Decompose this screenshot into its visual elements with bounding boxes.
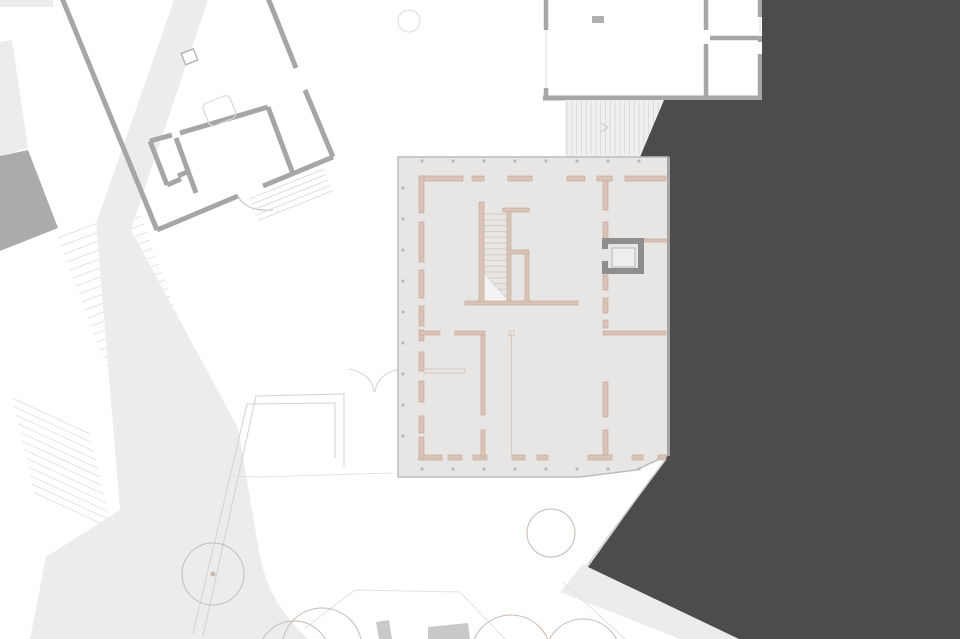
parking-hatch-lower-lines-2 (16, 415, 94, 451)
shrub-arc-right (375, 369, 400, 392)
slab-dots-top-5 (575, 159, 578, 162)
wall-top-6 (625, 176, 666, 181)
wall-spine-6 (603, 382, 608, 417)
parking-hatch-lower-lines-1 (14, 407, 92, 443)
wall-top-5 (597, 176, 612, 181)
tr-furniture-rect (592, 16, 604, 23)
parking-hatch-lower-lines-3 (18, 424, 96, 460)
stair-wall-east (525, 254, 529, 302)
wall-left-8 (419, 416, 424, 433)
wall-bottom-6 (588, 455, 612, 460)
slab-dots-top-7 (637, 159, 640, 162)
wall-bottom-7 (632, 455, 643, 460)
ul-wall-right-b (305, 90, 333, 157)
wall-left-9 (419, 437, 424, 460)
tree-circle-center (527, 509, 575, 557)
ul-wall-right-a (268, 0, 296, 68)
slab-dots-left-7 (401, 403, 404, 406)
slab-dots-left-8 (401, 434, 404, 437)
wall-left-7 (419, 381, 424, 402)
slab-dots-bottom-2 (482, 467, 485, 470)
slab-dots-top-4 (544, 159, 547, 162)
building-central (398, 157, 669, 477)
wall-spine-3 (603, 275, 608, 290)
wall-top-3 (508, 176, 532, 181)
slab-dots-top-2 (482, 159, 485, 162)
room-wall-h1 (419, 331, 440, 335)
ul-wall-bottom-a (157, 196, 238, 230)
slab-dots-bottom-1 (451, 467, 454, 470)
stair-wall-mid (507, 250, 529, 254)
tree-circle-bottom-4 (545, 619, 621, 639)
wall-top-4 (567, 176, 585, 181)
wall-top-2 (472, 176, 484, 181)
upper-left-stair-treads-0 (249, 169, 324, 199)
ground-bit-2 (428, 623, 470, 639)
elevator-car (612, 248, 635, 267)
parking-hatch-lower-lines-6 (24, 450, 102, 486)
room-wall-v1 (481, 335, 485, 415)
wall-left-2 (419, 222, 424, 262)
tr-window-glazing (546, 17, 760, 88)
road-top-left-bar (0, 0, 53, 7)
wall-spine-7 (603, 430, 608, 455)
wall-bottom-2 (448, 455, 462, 460)
parking-hatch-lower-lines-10 (32, 484, 110, 520)
wall-left-3 (419, 270, 424, 298)
parking-hatch-lower-lines-5 (22, 441, 100, 477)
slab-dots-top-1 (451, 159, 454, 162)
room-wall-h2 (455, 331, 485, 335)
parking-hatch-lower-lines-7 (26, 458, 104, 494)
terrace-edge-line (230, 473, 392, 477)
wall-bottom-5 (537, 455, 548, 460)
path-outline-bottom (305, 590, 505, 639)
tree-circle-bottom-3 (471, 615, 551, 639)
ul-partition-center-nub (178, 172, 187, 176)
ground-bit-1 (376, 620, 392, 639)
tree-circle-top (398, 10, 420, 32)
upper-left-stair-treads-1 (251, 174, 326, 204)
building-top-right (543, 0, 762, 98)
wall-bottom-4 (512, 455, 525, 460)
slab-dots-left-1 (401, 217, 404, 220)
parking-hatch-lower-lines (12, 398, 112, 529)
parking-hatch-lower-lines-4 (20, 432, 98, 468)
upper-left-stair-treads-4 (258, 191, 333, 221)
site-plan-drawing (0, 0, 960, 639)
wall-top-1 (419, 176, 463, 181)
road-left-strip (0, 40, 28, 156)
gray-wedge-structure (0, 150, 58, 251)
wall-bottom-8 (658, 455, 666, 460)
room-wall-h4 (641, 239, 667, 242)
road-lower-plaza (30, 222, 308, 639)
wall-spine-1 (603, 181, 608, 210)
slab-dots-left-3 (401, 279, 404, 282)
wall-spine-5 (603, 320, 608, 328)
ul-partition-mid-b (180, 107, 268, 133)
slab-dots-top-6 (606, 159, 609, 162)
slab-dots-left-2 (401, 248, 404, 251)
building-upper-left (62, 0, 333, 230)
stair-wall-top-flange (503, 208, 529, 212)
shrub-arc-left (349, 369, 374, 392)
slab-dots-bottom-6 (606, 467, 609, 470)
slab-dots-bottom-5 (575, 467, 578, 470)
stair-wall-south (465, 301, 578, 305)
parking-hatch-lower-lines-8 (28, 467, 106, 503)
upper-left-stair-treads-3 (256, 185, 331, 215)
slab-dots-left-0 (401, 186, 404, 189)
slab-dots-bottom-0 (420, 467, 423, 470)
parking-hatch-lower-lines-9 (30, 475, 108, 511)
wall-left-6 (419, 352, 424, 371)
parking-hatch-lower-lines-0 (12, 398, 90, 434)
slab-dots-bottom-7 (637, 467, 640, 470)
slab-dots-left-4 (401, 310, 404, 313)
ul-partition-right (268, 107, 293, 174)
slab-dots-left-5 (401, 341, 404, 344)
central-slab (398, 157, 668, 477)
slab-dots-left-6 (401, 372, 404, 375)
wall-left-1 (419, 176, 424, 213)
ground-gray-bits (376, 620, 470, 639)
ul-partition-left-nub (167, 179, 181, 185)
slab-dots-top-0 (420, 159, 423, 162)
wall-left-4 (419, 306, 424, 326)
slab-dots-top-3 (513, 159, 516, 162)
site-plan-canvas (0, 0, 960, 639)
tree-trunk-dot (211, 572, 215, 576)
wall-spine-4 (603, 298, 608, 313)
room-wall-v2 (481, 430, 485, 457)
slab-dots-bottom-4 (544, 467, 547, 470)
room-wall-h3 (603, 331, 666, 335)
stair-wall-west (479, 202, 484, 302)
ul-partition-center (176, 138, 196, 193)
wall-spine-2 (603, 222, 608, 239)
faint-path-lines (230, 473, 625, 639)
slab-dots-bottom-3 (513, 467, 516, 470)
